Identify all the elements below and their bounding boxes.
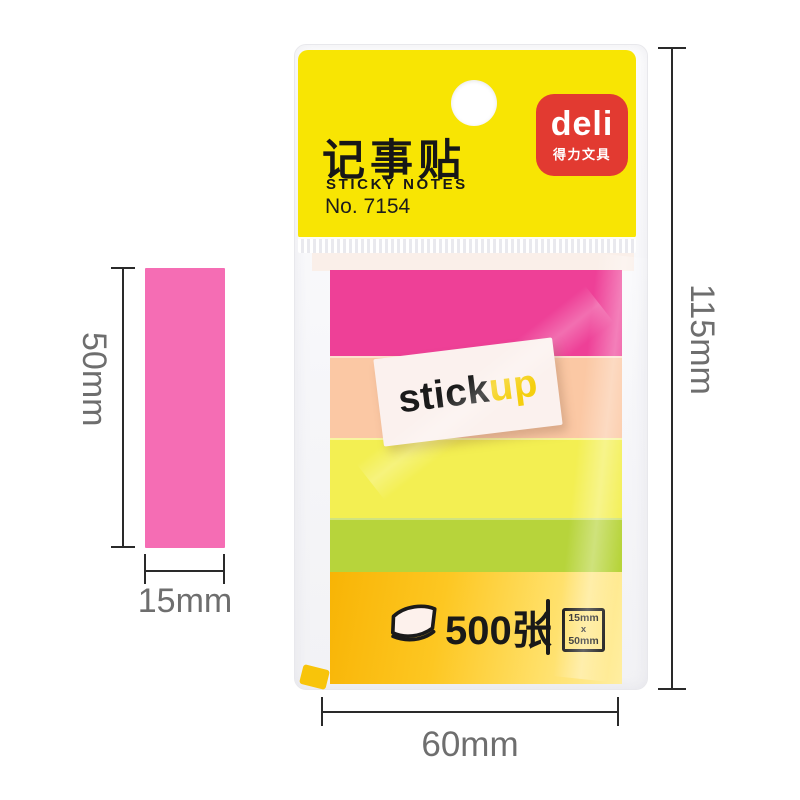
dim-cap [658,47,686,49]
note-stack-yellow [330,438,622,518]
dim-label-package-height: 115mm [682,284,721,464]
dim-line-package-width [322,711,619,713]
size-spec-width: 15mm [568,612,598,624]
dim-cap [321,697,323,726]
product-title-en: STICKY NOTES [326,176,468,193]
size-spec-height: 50mm [568,635,598,647]
sheet-count: 500张 [445,598,552,656]
stickup-logotype-up: up [487,362,541,411]
dim-label-note-height: 50mm [74,332,113,492]
dim-label-note-width: 15mm [125,582,245,621]
model-number: No. 7154 [325,195,410,219]
stickup-logotype: stickup [396,362,540,423]
dim-line-note-width [145,570,225,572]
hang-hole-icon [451,80,497,126]
dim-cap [223,554,225,584]
dim-cap [617,697,619,726]
dim-line-note-height [122,268,124,548]
dim-cap [144,554,146,584]
dim-cap [111,267,135,269]
size-spec-box: 15mm x 50mm [562,608,605,652]
note-stack-chartreuse [330,518,622,572]
dim-cap [111,546,135,548]
dim-label-package-width: 60mm [370,725,570,765]
deli-brand-logo: deli 得力文具 [536,94,628,176]
stickup-logotype-stick: stick [396,368,492,422]
band-divider [546,599,550,655]
sticky-pad-icon [383,598,444,650]
dim-cap [658,688,686,690]
perforation-strip [298,237,636,253]
deli-subtext: 得力文具 [553,144,611,163]
bag-inner-reflection [312,253,634,271]
note-stack-magenta [330,270,622,356]
size-spec-x: x [581,625,586,636]
deli-wordmark: deli [551,107,614,141]
dim-line-package-height [671,48,673,690]
product-image: 记事贴 STICKY NOTES No. 7154 deli 得力文具 500张… [0,0,800,800]
single-note-swatch [145,268,225,548]
